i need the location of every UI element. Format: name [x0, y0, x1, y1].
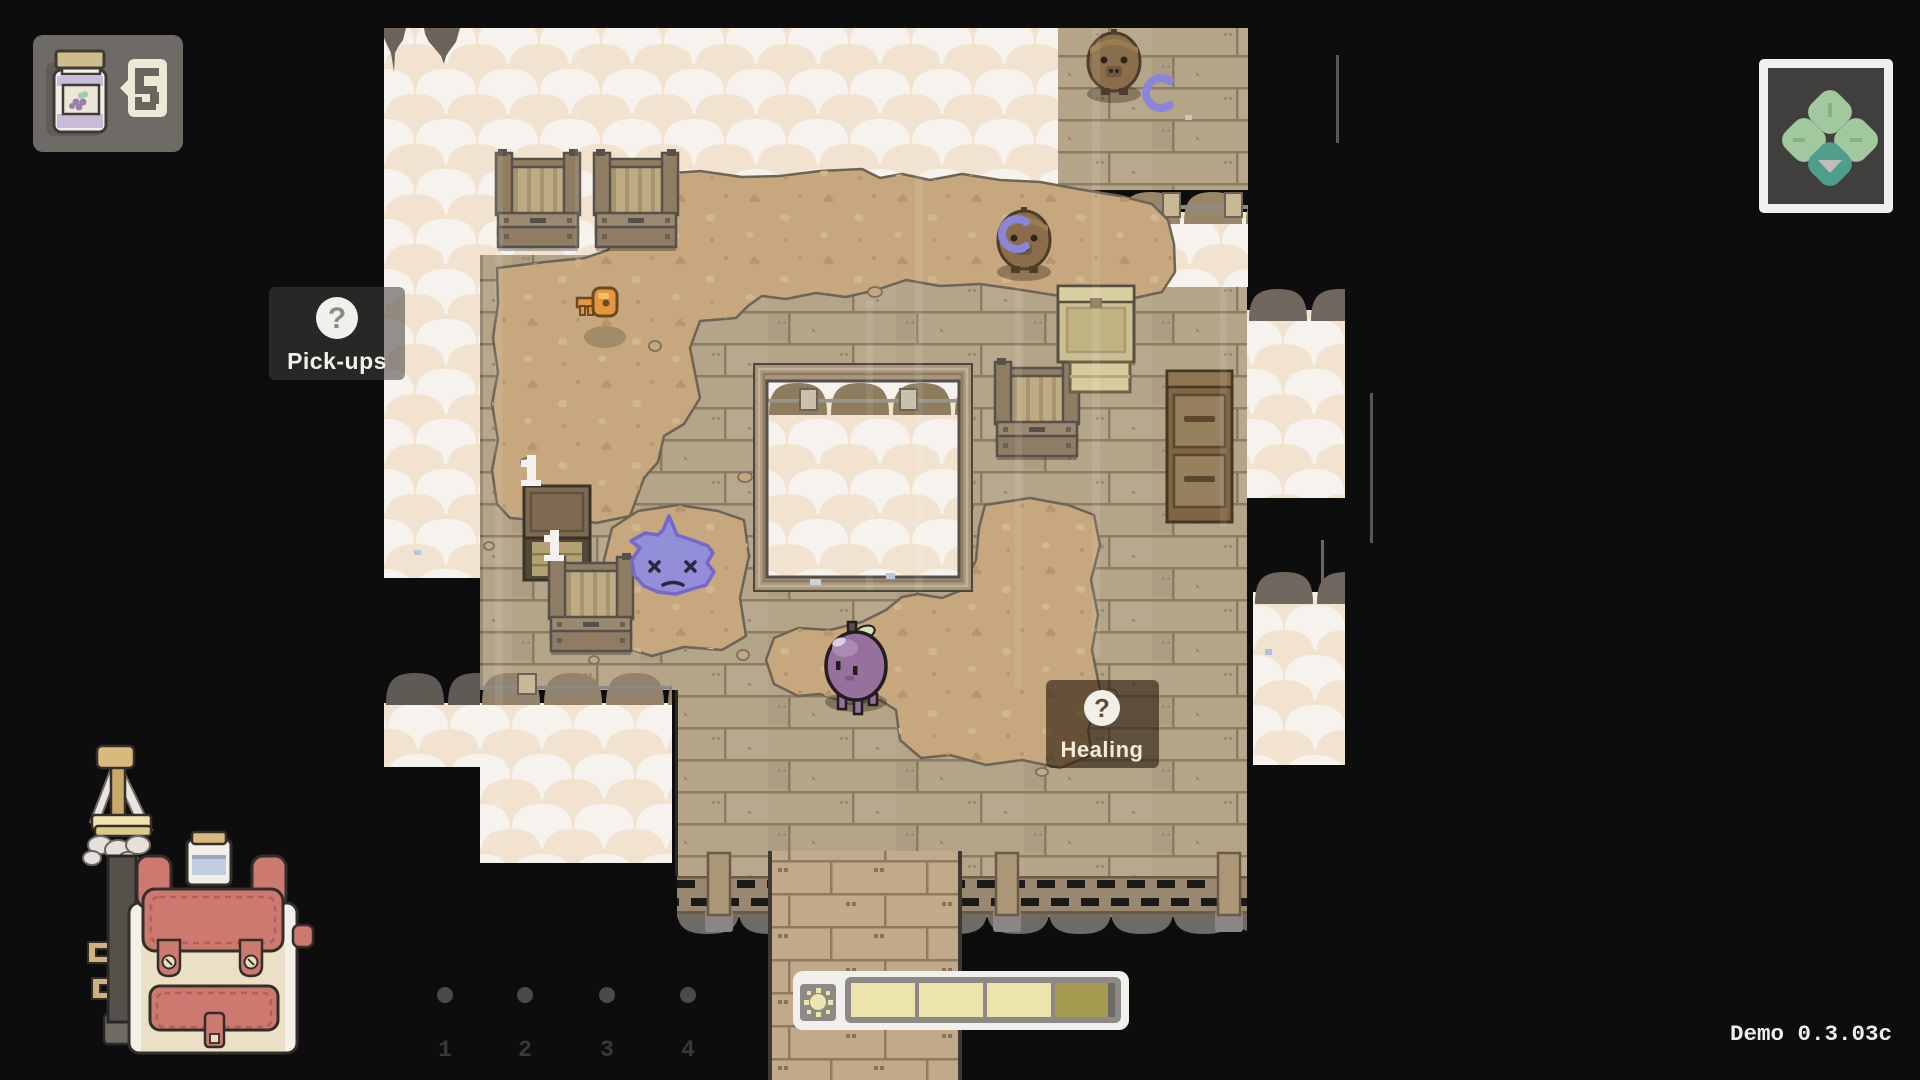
svg-text:Healing: Healing	[1061, 737, 1144, 762]
svg-text:?: ?	[328, 302, 346, 335]
svg-text:Demo 0.3.03c: Demo 0.3.03c	[1730, 1021, 1892, 1047]
svg-text:?: ?	[1094, 693, 1110, 723]
svg-text:3: 3	[600, 1037, 614, 1063]
svg-text:Pick-ups: Pick-ups	[287, 348, 387, 374]
svg-text:2: 2	[518, 1037, 532, 1063]
svg-text:1: 1	[438, 1037, 452, 1063]
svg-text:4: 4	[681, 1037, 695, 1063]
